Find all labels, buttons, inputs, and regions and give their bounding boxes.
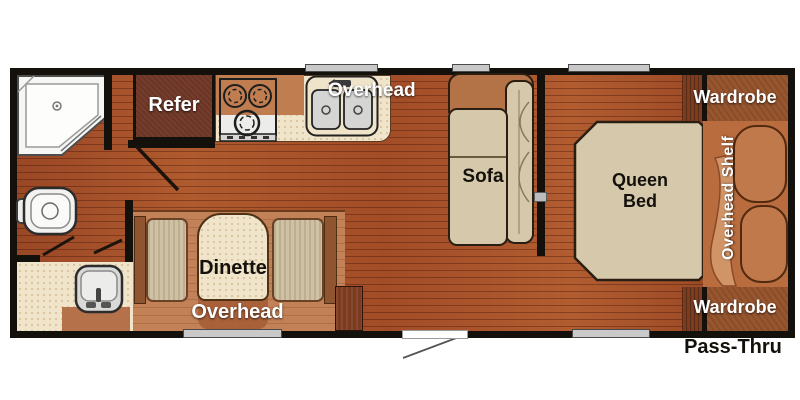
overhead-shelf-label: Overhead Shelf xyxy=(720,122,748,274)
wardrobe-top-label: Wardrobe xyxy=(682,87,788,108)
shower-icon xyxy=(17,75,107,157)
stove-icon xyxy=(219,78,277,142)
bath-dinette-wall xyxy=(125,200,133,262)
bathroom-wall-stub xyxy=(10,255,40,262)
window xyxy=(305,64,378,72)
window xyxy=(568,64,650,72)
sofa-cushion-divider xyxy=(450,156,506,158)
refer-wall-horizontal xyxy=(128,140,215,148)
shower-stall xyxy=(17,75,107,157)
bathroom-wall-vertical xyxy=(104,68,112,150)
entry-door-opening xyxy=(402,330,468,339)
toilet-icon xyxy=(16,186,78,236)
queen-bed-label: Queen Bed xyxy=(598,170,682,211)
sofa-label: Sofa xyxy=(455,166,511,188)
entry-step xyxy=(335,286,363,331)
armrest-curves xyxy=(507,82,532,242)
kitchen-overhead-label: Overhead xyxy=(328,80,440,102)
dinette-bench-left xyxy=(146,218,188,302)
bedroom-wall xyxy=(537,68,545,256)
vanity-sink xyxy=(74,264,124,314)
floorplan-canvas: Refer Overhead xyxy=(0,0,800,400)
pass-thru-label: Pass-Thru xyxy=(678,336,788,359)
cooktop xyxy=(219,78,277,142)
toilet xyxy=(16,186,78,236)
window xyxy=(452,64,490,72)
sink-icon xyxy=(74,264,124,314)
sofa-armrest xyxy=(505,80,534,244)
dinette-bench-back-left xyxy=(134,216,146,304)
dinette-overhead-label: Overhead xyxy=(190,301,285,324)
refer-label: Refer xyxy=(133,94,215,117)
window xyxy=(183,329,282,338)
dinette-bench-right xyxy=(272,218,324,302)
dinette-label: Dinette xyxy=(190,257,276,280)
wardrobe-bottom-label: Wardrobe xyxy=(682,297,788,318)
bedroom-wall-latch xyxy=(534,192,547,202)
window xyxy=(572,329,650,338)
